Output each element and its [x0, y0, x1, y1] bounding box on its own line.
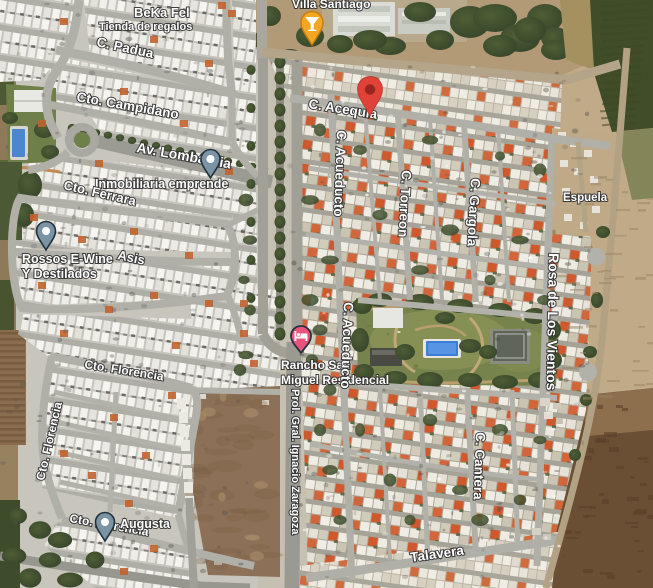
svg-text:Y Destilados: Y Destilados [22, 267, 97, 281]
svg-text:Rossos E-Wine: Rossos E-Wine [22, 252, 113, 266]
svg-text:Augusta: Augusta [120, 517, 171, 531]
svg-text:BeKa Fel: BeKa Fel [134, 5, 190, 20]
svg-text:C. Cantera: C. Cantera [471, 432, 488, 500]
svg-text:Villa Santiago: Villa Santiago [292, 0, 370, 11]
svg-text:Tienda de regalos: Tienda de regalos [99, 21, 192, 33]
svg-text:Espuela: Espuela [563, 192, 608, 204]
svg-text:Prol. Gral. Ignacio Zaragoza: Prol. Gral. Ignacio Zaragoza [289, 389, 301, 535]
svg-text:Miguel Residencial: Miguel Residencial [281, 373, 389, 387]
svg-text:C. Acueducto: C. Acueducto [331, 130, 349, 217]
svg-text:C. Acueducto: C. Acueducto [338, 302, 356, 389]
svg-text:Rosa de Los Vientos: Rosa de Los Vientos [544, 253, 562, 391]
